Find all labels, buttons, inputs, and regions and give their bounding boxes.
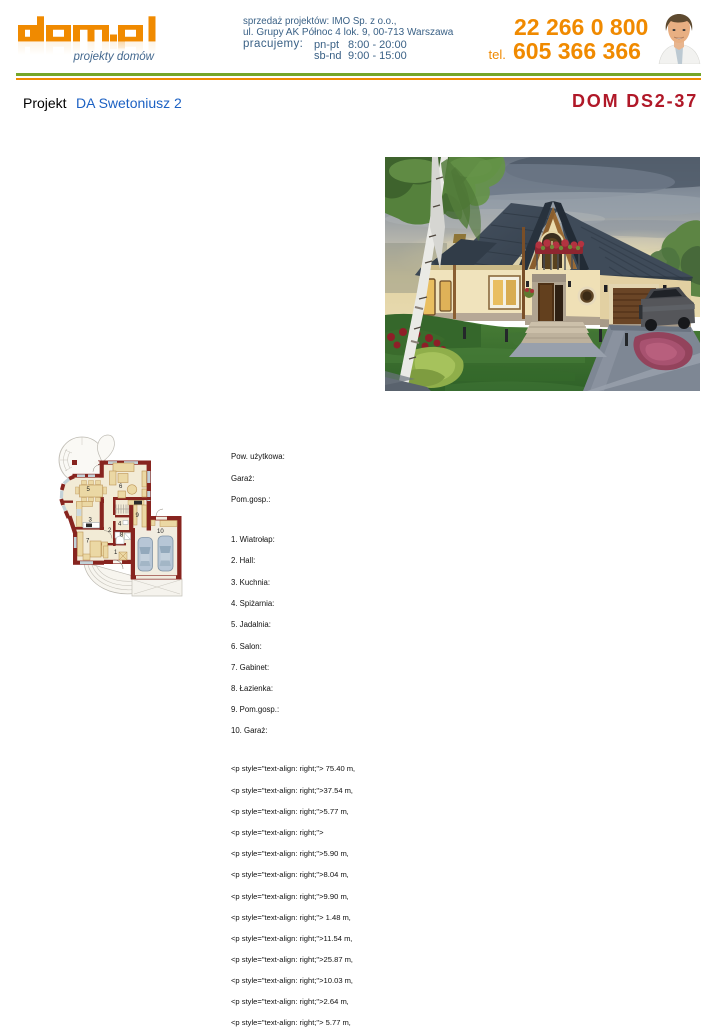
svg-text:10: 10 xyxy=(157,529,164,535)
